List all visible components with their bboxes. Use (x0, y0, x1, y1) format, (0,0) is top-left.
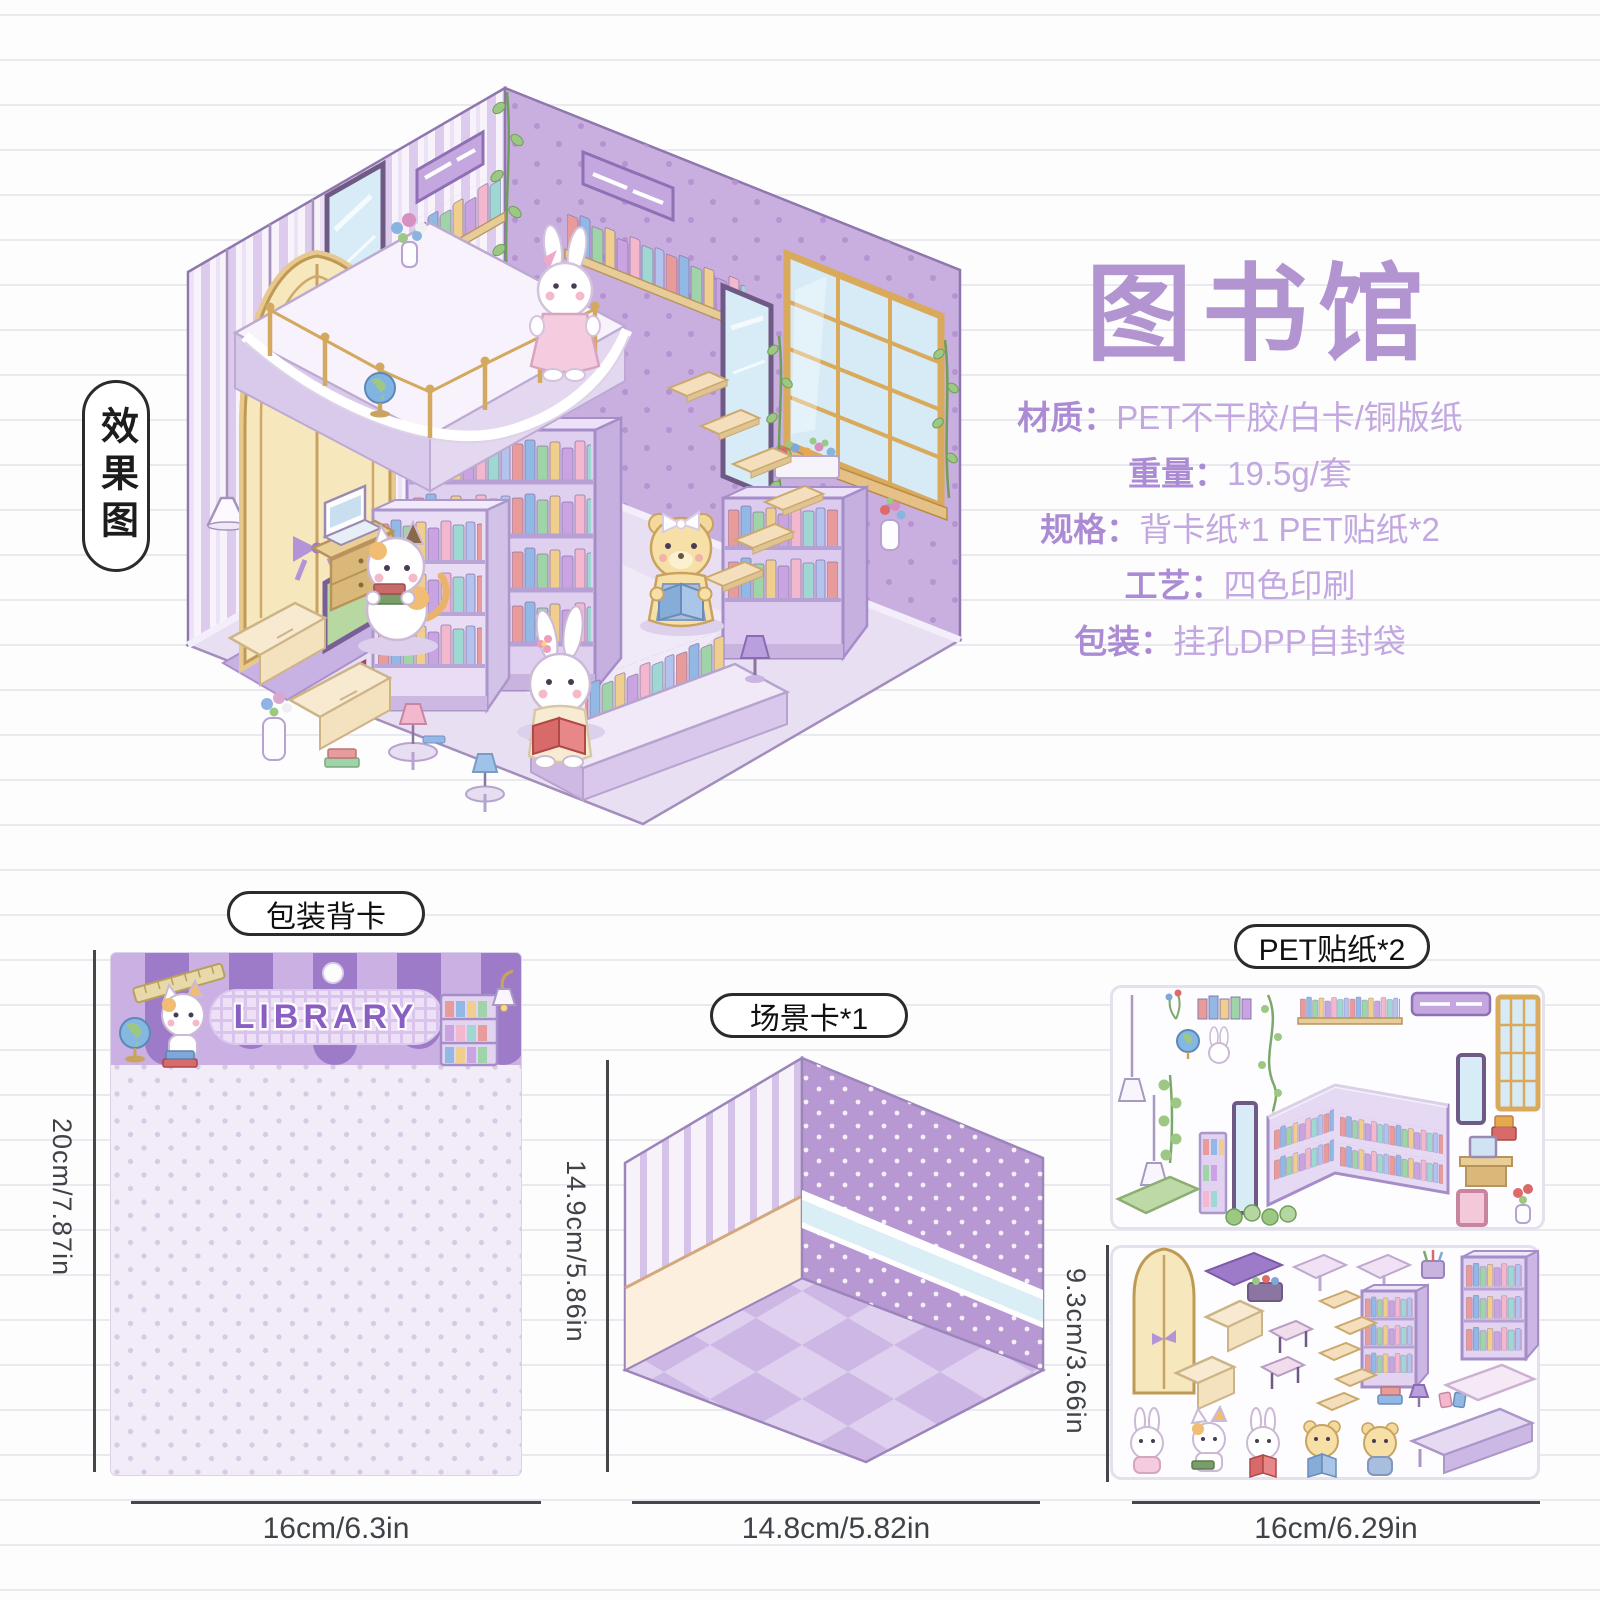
spec-material: 材质： PET不干胶/白卡/铜版纸 (960, 390, 1520, 446)
back-card-label: 包装背卡 (266, 892, 386, 936)
packaging-back-card: LIBRARY (110, 952, 522, 1476)
back-card-label-pill: 包装背卡 (227, 891, 425, 936)
library-room-illustration (175, 78, 980, 826)
sticker-bookcase-2 (1362, 1285, 1428, 1387)
sticker-painting (1458, 1191, 1486, 1225)
back-card-width-line (131, 1501, 541, 1504)
spec-size-value: 背卡纸*1 PET贴纸*2 (1139, 502, 1440, 558)
sticker-book-row (1198, 996, 1251, 1019)
scene-card-height-label: 14.9cm/5.86in (560, 1160, 591, 1400)
mini-bookshelf-icon (441, 995, 497, 1065)
scene-card-width-line (632, 1501, 1040, 1504)
sticker-character-bear-2 (1362, 1423, 1398, 1475)
wall-lamp-icon (493, 971, 515, 1012)
spec-packaging-label: 包装： (1074, 614, 1173, 670)
sticker-mirror (1458, 1055, 1484, 1123)
product-detail-page: 效果图 (0, 0, 1600, 1600)
spec-material-label: 材质： (1017, 390, 1116, 446)
cat-icon (162, 981, 204, 1067)
sticker-sheet-1 (1110, 985, 1545, 1230)
globe-icon (120, 1018, 150, 1063)
back-card-height-label: 20cm/7.87in (46, 1118, 77, 1338)
sticker-sheets-height-label: 9.3cm/3.66in (1060, 1268, 1091, 1468)
sticker-small-books (1378, 1387, 1402, 1404)
reading-bear (649, 512, 713, 626)
sticker-small-shelf (1200, 1133, 1226, 1213)
spec-weight-value: 19.5g/套 (1227, 446, 1352, 502)
sticker-window (1498, 997, 1538, 1109)
spec-packaging-value: 挂孔DPP自封袋 (1173, 614, 1406, 670)
effect-view-label: 效果图 (89, 406, 144, 547)
scene-card-height-line (606, 1060, 609, 1472)
sticker-sheets-label: PET贴纸*2 (1259, 925, 1406, 969)
product-title: 图书馆 (1020, 228, 1500, 382)
sticker-sheet-2 (1110, 1245, 1540, 1480)
spec-craft: 工艺： 四色印刷 (960, 558, 1520, 614)
spec-weight: 重量： 19.5g/套 (960, 446, 1520, 502)
sticker-sheets-label-pill: PET贴纸*2 (1234, 924, 1430, 969)
effect-view-badge: 效果图 (82, 380, 150, 572)
back-card-width-label: 16cm/6.3in (131, 1512, 541, 1546)
scene-card-label: 场景卡*1 (750, 994, 868, 1038)
sticker-bookcase-1 (1462, 1251, 1538, 1359)
sticker-wall-shelf (1298, 995, 1402, 1024)
flower-vase-floor (261, 692, 292, 760)
sticker-basket (1248, 1275, 1282, 1301)
spec-size-label: 规格： (1040, 502, 1139, 558)
book-stack-floor (325, 749, 359, 767)
back-card-height-line (93, 950, 96, 1472)
spec-list: 材质： PET不干胶/白卡/铜版纸 重量： 19.5g/套 规格： 背卡纸*1 … (960, 390, 1520, 670)
scene-card-label-pill: 场景卡*1 (710, 993, 908, 1038)
sticker-sheets-width-line (1132, 1501, 1540, 1504)
sticker-pencil-pot (1422, 1250, 1444, 1278)
spec-weight-label: 重量： (1128, 446, 1227, 502)
sticker-door-mirror (1234, 1103, 1256, 1213)
sticker-sheets-height-line (1106, 1245, 1109, 1482)
hang-hole (323, 963, 343, 983)
sticker-sign (1412, 993, 1490, 1015)
spec-size: 规格： 背卡纸*1 PET贴纸*2 (960, 502, 1520, 558)
spec-packaging: 包装： 挂孔DPP自封袋 (960, 614, 1520, 670)
sticker-sheets-width-label: 16cm/6.29in (1132, 1512, 1540, 1546)
sticker-character-bear-1 (1304, 1421, 1340, 1477)
back-card-decorations (111, 953, 522, 1088)
scene-card (618, 1048, 1048, 1473)
spec-craft-label: 工艺： (1125, 558, 1224, 614)
spec-material-value: PET不干胶/白卡/铜版纸 (1116, 390, 1463, 446)
spec-craft-value: 四色印刷 (1224, 558, 1356, 614)
scene-card-width-label: 14.8cm/5.82in (632, 1512, 1040, 1546)
